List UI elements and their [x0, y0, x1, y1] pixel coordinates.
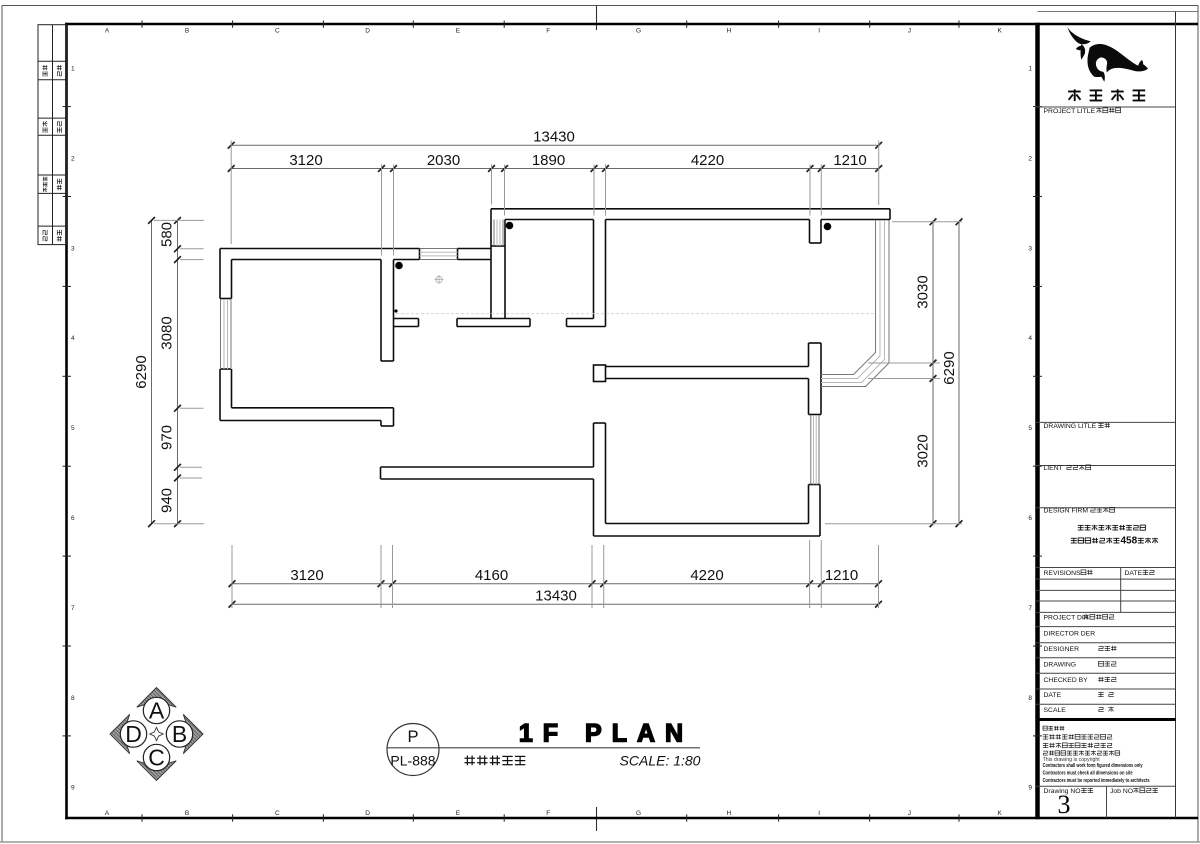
- svg-text:DESIGN FIRM: DESIGN FIRM: [1044, 508, 1089, 515]
- svg-text:D: D: [365, 810, 370, 817]
- svg-text:1: 1: [71, 66, 75, 73]
- svg-text:1: 1: [1028, 66, 1032, 73]
- svg-text:3: 3: [1058, 790, 1071, 819]
- svg-text:1F PLAN: 1F PLAN: [519, 720, 693, 748]
- svg-text:580: 580: [159, 222, 176, 247]
- svg-text:9: 9: [1028, 785, 1032, 792]
- svg-text:B: B: [185, 810, 189, 817]
- svg-text:4220: 4220: [691, 152, 724, 169]
- svg-text:SCALE: SCALE: [1044, 707, 1067, 714]
- svg-text:4: 4: [71, 335, 75, 342]
- svg-text:D: D: [125, 721, 142, 747]
- svg-text:2: 2: [1028, 155, 1032, 162]
- svg-text:458: 458: [1121, 536, 1138, 547]
- svg-text:A: A: [105, 28, 110, 35]
- svg-text:H: H: [726, 810, 731, 817]
- svg-text:3080: 3080: [159, 316, 176, 349]
- svg-text:970: 970: [159, 425, 176, 450]
- svg-text:C: C: [275, 28, 280, 35]
- svg-text:DATE: DATE: [1044, 692, 1062, 699]
- svg-text:Contractors must check all dim: Contractors must check all dimensions on…: [1043, 771, 1133, 777]
- svg-text:DATE: DATE: [1125, 570, 1143, 577]
- svg-text:A: A: [149, 698, 165, 724]
- svg-text:13430: 13430: [535, 588, 577, 605]
- svg-text:1210: 1210: [825, 567, 858, 584]
- svg-text:P: P: [407, 728, 418, 746]
- svg-text:2: 2: [71, 155, 75, 162]
- svg-text:PROJECT LITLE: PROJECT LITLE: [1044, 108, 1096, 115]
- svg-text:SCALE: 1:80: SCALE: 1:80: [620, 753, 701, 769]
- svg-text:F: F: [546, 810, 550, 817]
- svg-text:1890: 1890: [532, 152, 565, 169]
- svg-text:C: C: [148, 745, 165, 771]
- svg-text:9: 9: [71, 785, 75, 792]
- svg-text:3: 3: [71, 245, 75, 252]
- svg-text:DRAWING LITLE: DRAWING LITLE: [1044, 423, 1097, 430]
- svg-text:Contractors must be reported i: Contractors must be reported immediately…: [1043, 778, 1150, 784]
- svg-text:C: C: [275, 810, 280, 817]
- svg-text:6290: 6290: [133, 355, 150, 388]
- svg-text:3120: 3120: [289, 152, 322, 169]
- svg-text:4: 4: [1028, 335, 1032, 342]
- svg-text:LIENT: LIENT: [1044, 465, 1063, 472]
- svg-text:4220: 4220: [690, 567, 723, 584]
- svg-text:B: B: [185, 28, 189, 35]
- svg-text:I: I: [818, 810, 820, 817]
- svg-text:I: I: [818, 28, 820, 35]
- svg-text:Job NO: Job NO: [1110, 788, 1133, 795]
- svg-text:3120: 3120: [290, 567, 323, 584]
- svg-text:F: F: [546, 28, 550, 35]
- svg-text:J: J: [908, 810, 911, 817]
- svg-text:3020: 3020: [915, 434, 932, 467]
- svg-text:7: 7: [1028, 605, 1032, 612]
- svg-text:7: 7: [71, 605, 75, 612]
- svg-text:2030: 2030: [427, 152, 460, 169]
- svg-text:1210: 1210: [833, 152, 866, 169]
- svg-text:D: D: [365, 28, 370, 35]
- svg-text:CHECKED BY: CHECKED BY: [1044, 677, 1089, 684]
- svg-text:3030: 3030: [915, 275, 932, 308]
- svg-text:PL-888: PL-888: [390, 753, 435, 769]
- svg-text:DRAWING: DRAWING: [1044, 662, 1077, 669]
- svg-text:5: 5: [1028, 425, 1032, 432]
- svg-text:6: 6: [71, 515, 75, 522]
- svg-text:DESIGNER: DESIGNER: [1044, 646, 1080, 653]
- svg-text:8: 8: [1028, 695, 1032, 702]
- svg-text:DIRECTOR DER: DIRECTOR DER: [1044, 631, 1096, 638]
- svg-text:PROJECT DIR: PROJECT DIR: [1044, 615, 1089, 622]
- svg-text:REVISIONS: REVISIONS: [1044, 570, 1081, 577]
- svg-text:J: J: [908, 28, 911, 35]
- svg-text:E: E: [456, 810, 461, 817]
- svg-text:3: 3: [1028, 245, 1032, 252]
- svg-text:E: E: [456, 28, 461, 35]
- svg-text:8: 8: [71, 695, 75, 702]
- svg-text:940: 940: [159, 488, 176, 513]
- svg-text:6: 6: [1028, 515, 1032, 522]
- svg-text:6290: 6290: [941, 351, 958, 384]
- svg-text:H: H: [726, 28, 731, 35]
- svg-text:4160: 4160: [475, 567, 508, 584]
- svg-text:5: 5: [71, 425, 75, 432]
- svg-text:K: K: [998, 28, 1003, 35]
- svg-text:Contractors shall work form fi: Contractors shall work form figured dime…: [1043, 763, 1143, 769]
- svg-text:13430: 13430: [533, 129, 575, 146]
- svg-text:A: A: [105, 810, 110, 817]
- svg-text:G: G: [636, 28, 641, 35]
- svg-text:K: K: [998, 810, 1003, 817]
- svg-text:B: B: [172, 721, 187, 747]
- svg-text:G: G: [636, 810, 641, 817]
